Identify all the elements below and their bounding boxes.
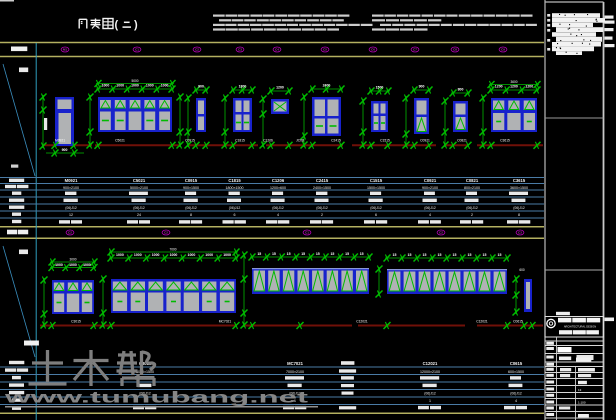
svg-text:(: ( bbox=[115, 19, 119, 31]
svg-text:): ) bbox=[134, 19, 138, 31]
svg-text:600×1500: 600×1500 bbox=[508, 370, 524, 374]
svg-text:C7: C7 bbox=[413, 48, 417, 52]
svg-text:4: 4 bbox=[277, 213, 279, 217]
svg-text:15: 15 bbox=[423, 253, 427, 257]
svg-text:800: 800 bbox=[458, 88, 464, 92]
svg-text:(06)J12: (06)J12 bbox=[466, 206, 478, 210]
svg-text:2400: 2400 bbox=[323, 84, 331, 88]
svg-text:C2: C2 bbox=[164, 231, 168, 235]
svg-text:900: 900 bbox=[62, 148, 68, 152]
svg-text:MC7021: MC7021 bbox=[219, 319, 232, 323]
svg-text:C1: C1 bbox=[135, 48, 139, 52]
svg-text:JC08: JC08 bbox=[296, 138, 304, 142]
svg-text:C2: C2 bbox=[439, 231, 443, 235]
svg-text:C12021: C12021 bbox=[476, 319, 488, 323]
svg-text:900: 900 bbox=[419, 85, 425, 89]
svg-text:C0921: C0921 bbox=[424, 178, 437, 183]
svg-text:2: 2 bbox=[321, 213, 323, 217]
svg-text:1000: 1000 bbox=[205, 253, 213, 257]
svg-text:C3615: C3615 bbox=[513, 178, 526, 183]
svg-text:C1815: C1815 bbox=[228, 178, 241, 183]
svg-text:MC7021: MC7021 bbox=[287, 361, 303, 366]
svg-text:M0921: M0921 bbox=[65, 178, 78, 183]
svg-text:8: 8 bbox=[518, 213, 520, 217]
svg-text:1000: 1000 bbox=[152, 253, 160, 257]
svg-text:4: 4 bbox=[429, 213, 431, 217]
svg-text:1000: 1000 bbox=[170, 253, 178, 257]
svg-text:C1515: C1515 bbox=[370, 178, 383, 183]
svg-text:C2: C2 bbox=[68, 231, 72, 235]
svg-text:15: 15 bbox=[287, 252, 291, 256]
svg-text:900: 900 bbox=[198, 85, 204, 89]
svg-text:(06)J12: (06)J12 bbox=[316, 206, 328, 210]
svg-text:15: 15 bbox=[272, 252, 276, 256]
svg-text:15: 15 bbox=[345, 252, 349, 256]
svg-text:600: 600 bbox=[519, 268, 525, 272]
svg-text:C0821: C0821 bbox=[457, 138, 467, 142]
svg-text:900×1500: 900×1500 bbox=[183, 186, 199, 190]
svg-text:6: 6 bbox=[375, 213, 377, 217]
svg-text:2400×1500: 2400×1500 bbox=[313, 186, 331, 190]
svg-text:1000: 1000 bbox=[55, 263, 63, 267]
svg-text:(06)J12: (06)J12 bbox=[229, 206, 241, 210]
svg-text:C3615: C3615 bbox=[500, 138, 510, 142]
svg-text:5000×2100: 5000×2100 bbox=[130, 186, 148, 190]
svg-text:C2415: C2415 bbox=[331, 138, 341, 142]
svg-text:1: 1 bbox=[429, 399, 431, 403]
svg-text:8: 8 bbox=[190, 213, 192, 217]
svg-text:900×2100: 900×2100 bbox=[422, 186, 438, 190]
svg-text:C12021: C12021 bbox=[423, 361, 438, 366]
svg-text:C0615: C0615 bbox=[513, 319, 523, 323]
svg-text:C1206: C1206 bbox=[272, 178, 285, 183]
svg-text:1000: 1000 bbox=[69, 263, 77, 267]
svg-text:12000×2100: 12000×2100 bbox=[420, 370, 440, 374]
svg-text:C9: C9 bbox=[501, 48, 505, 52]
svg-text:(06)J12: (06)J12 bbox=[185, 206, 197, 210]
svg-text:7000×2100: 7000×2100 bbox=[286, 370, 304, 374]
svg-text:C0915: C0915 bbox=[185, 138, 195, 142]
svg-text:(06)J12: (06)J12 bbox=[510, 392, 522, 396]
svg-text:12: 12 bbox=[69, 213, 73, 217]
svg-text:1200: 1200 bbox=[525, 85, 533, 89]
svg-text:1200: 1200 bbox=[276, 86, 284, 90]
svg-text:15: 15 bbox=[360, 252, 364, 256]
svg-text:3000: 3000 bbox=[69, 257, 76, 261]
svg-text:(06)J12: (06)J12 bbox=[424, 206, 436, 210]
svg-text:ARCHITECTURAL DESIGN: ARCHITECTURAL DESIGN bbox=[564, 324, 596, 328]
svg-text:M0921: M0921 bbox=[55, 138, 65, 142]
svg-text:1000: 1000 bbox=[161, 84, 169, 88]
svg-text:6: 6 bbox=[234, 213, 236, 217]
svg-text:C0915: C0915 bbox=[185, 178, 198, 183]
svg-text:1800: 1800 bbox=[239, 85, 247, 89]
svg-text:15: 15 bbox=[468, 253, 472, 257]
svg-text:C2: C2 bbox=[195, 48, 199, 52]
svg-text:24: 24 bbox=[137, 213, 141, 217]
svg-text:1000: 1000 bbox=[131, 84, 139, 88]
svg-text:900×2100: 900×2100 bbox=[63, 186, 79, 190]
svg-text:C3: C3 bbox=[518, 231, 522, 235]
svg-text:15: 15 bbox=[393, 253, 397, 257]
svg-text:1000: 1000 bbox=[116, 253, 124, 257]
svg-text:15: 15 bbox=[408, 253, 412, 257]
svg-text:C1206: C1206 bbox=[263, 138, 273, 142]
svg-text:1500×1500: 1500×1500 bbox=[367, 186, 385, 190]
svg-text:C2415: C2415 bbox=[316, 178, 329, 183]
svg-text:7000: 7000 bbox=[169, 247, 176, 251]
svg-text:1000: 1000 bbox=[83, 263, 91, 267]
svg-text:(06)J12: (06)J12 bbox=[370, 206, 382, 210]
svg-text:C3: C3 bbox=[238, 48, 242, 52]
svg-text:C1815: C1815 bbox=[235, 138, 245, 142]
svg-text:1200: 1200 bbox=[495, 85, 503, 89]
svg-text:5000: 5000 bbox=[131, 79, 138, 83]
svg-text:C5: C5 bbox=[323, 48, 327, 52]
svg-text:C5021: C5021 bbox=[115, 138, 125, 142]
svg-text:C0821: C0821 bbox=[466, 178, 479, 183]
svg-text:C0921: C0921 bbox=[420, 138, 430, 142]
svg-text:(06)J12: (06)J12 bbox=[272, 206, 284, 210]
svg-text:1000: 1000 bbox=[134, 253, 142, 257]
svg-text:15: 15 bbox=[301, 252, 305, 256]
svg-text:1200×600: 1200×600 bbox=[270, 186, 286, 190]
svg-text:C6: C6 bbox=[371, 48, 375, 52]
svg-text:1000: 1000 bbox=[102, 84, 110, 88]
svg-text:C4: C4 bbox=[275, 48, 279, 52]
svg-text:1000: 1000 bbox=[116, 84, 124, 88]
svg-text:C12021: C12021 bbox=[356, 319, 368, 323]
svg-text:(06)J12: (06)J12 bbox=[513, 206, 525, 210]
svg-text:C3015: C3015 bbox=[71, 319, 81, 323]
svg-text:15: 15 bbox=[483, 253, 487, 257]
svg-text:M1: M1 bbox=[63, 48, 67, 52]
svg-text:C1515: C1515 bbox=[380, 138, 390, 142]
svg-text:15: 15 bbox=[316, 252, 320, 256]
svg-text:1000: 1000 bbox=[146, 84, 154, 88]
svg-text:1000: 1000 bbox=[188, 253, 196, 257]
svg-text:1500: 1500 bbox=[376, 86, 384, 90]
svg-text:13: 13 bbox=[578, 388, 582, 392]
svg-text:1800×1500: 1800×1500 bbox=[225, 186, 243, 190]
svg-text:(06)J12: (06)J12 bbox=[65, 206, 77, 210]
svg-text:C0615: C0615 bbox=[510, 361, 523, 366]
svg-text:15: 15 bbox=[498, 253, 502, 257]
svg-text:C8: C8 bbox=[453, 48, 457, 52]
svg-text:C5021: C5021 bbox=[133, 178, 146, 183]
svg-text:2: 2 bbox=[471, 213, 473, 217]
svg-text:(06)J12: (06)J12 bbox=[424, 392, 436, 396]
svg-text:1200: 1200 bbox=[510, 85, 518, 89]
svg-text:15: 15 bbox=[438, 253, 442, 257]
svg-text:C1: C1 bbox=[305, 231, 309, 235]
svg-text:4: 4 bbox=[515, 399, 517, 403]
svg-text:1000: 1000 bbox=[223, 253, 231, 257]
svg-text:1:100: 1:100 bbox=[578, 400, 586, 404]
svg-text:(06)J12: (06)J12 bbox=[133, 206, 145, 210]
svg-text:800×2100: 800×2100 bbox=[464, 186, 480, 190]
svg-text:3600: 3600 bbox=[510, 80, 517, 84]
svg-text:15: 15 bbox=[330, 252, 334, 256]
svg-text:15: 15 bbox=[257, 252, 261, 256]
svg-text:3600×1500: 3600×1500 bbox=[510, 186, 528, 190]
svg-text:15: 15 bbox=[453, 253, 457, 257]
svg-text:www.tumubang.net: www.tumubang.net bbox=[3, 390, 308, 407]
